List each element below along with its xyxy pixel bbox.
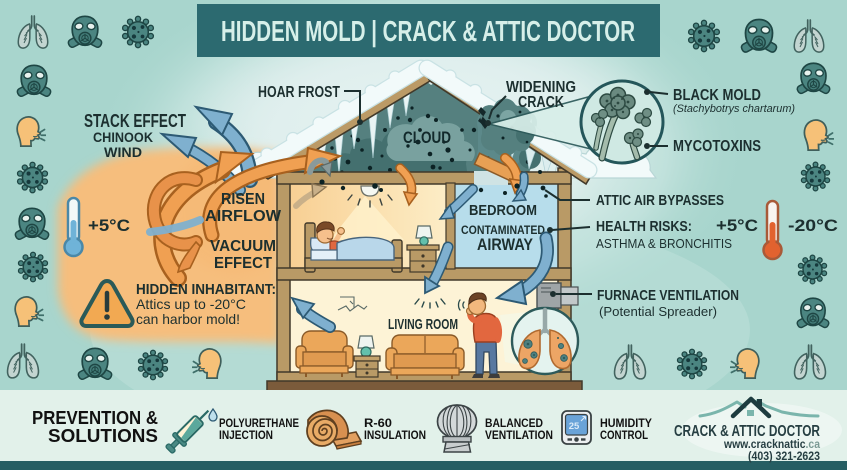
svg-text:(403) 321-2623: (403) 321-2623 <box>748 449 820 463</box>
svg-text:MYCOTOXINS: MYCOTOXINS <box>673 138 761 155</box>
svg-text:CRACK: CRACK <box>518 94 564 111</box>
svg-text:(Stachybotrys chartarum): (Stachybotrys chartarum) <box>673 103 795 115</box>
svg-text:BEDROOM: BEDROOM <box>469 202 537 219</box>
svg-text:WIND: WIND <box>104 144 142 160</box>
svg-text:CONTROL: CONTROL <box>600 430 648 442</box>
svg-text:PREVENTION &: PREVENTION & <box>32 408 158 428</box>
svg-text:+5°C: +5°C <box>716 216 758 235</box>
svg-text:CHINOOK: CHINOOK <box>93 129 153 145</box>
svg-text:can harbor mold!: can harbor mold! <box>136 311 240 327</box>
svg-text:HEALTH RISKS:: HEALTH RISKS: <box>596 218 692 235</box>
svg-text:STACK EFFECT: STACK EFFECT <box>84 111 186 131</box>
svg-text:ASTHMA & BRONCHITIS: ASTHMA & BRONCHITIS <box>596 236 732 251</box>
svg-text:+5°C: +5°C <box>88 216 130 235</box>
svg-text:EFFECT: EFFECT <box>214 255 272 272</box>
svg-text:INJECTION: INJECTION <box>219 430 273 442</box>
svg-text:(Potential Spreader): (Potential Spreader) <box>599 304 717 319</box>
svg-text:BLACK MOLD: BLACK MOLD <box>673 87 761 104</box>
svg-text:FURNACE VENTILATION: FURNACE VENTILATION <box>597 287 739 304</box>
svg-text:RISEN: RISEN <box>221 191 265 208</box>
svg-text:ATTIC AIR BYPASSES: ATTIC AIR BYPASSES <box>596 192 724 209</box>
svg-text:HOAR FROST: HOAR FROST <box>258 84 340 101</box>
svg-text:SOLUTIONS: SOLUTIONS <box>48 426 158 446</box>
svg-text:25: 25 <box>569 421 580 432</box>
svg-text:-20°C: -20°C <box>788 216 838 235</box>
svg-text:HIDDEN MOLD | CRACK & ATTIC DO: HIDDEN MOLD | CRACK & ATTIC DOCTOR <box>221 16 635 48</box>
svg-text:POLYURETHANE: POLYURETHANE <box>219 418 299 430</box>
svg-text:VENTILATION: VENTILATION <box>485 430 553 442</box>
svg-text:CLOUD: CLOUD <box>403 128 451 147</box>
svg-text:HUMIDITY: HUMIDITY <box>600 418 652 430</box>
svg-text:Attics up to -20°C: Attics up to -20°C <box>136 296 246 312</box>
svg-text:AIRFLOW: AIRFLOW <box>205 208 282 225</box>
svg-text:VACUUM: VACUUM <box>210 238 276 255</box>
svg-text:R-60: R-60 <box>364 418 392 430</box>
svg-text:INSULATION: INSULATION <box>364 430 426 442</box>
svg-text:AIRWAY: AIRWAY <box>477 235 534 254</box>
svg-text:BALANCED: BALANCED <box>485 418 543 430</box>
svg-text:LIVING ROOM: LIVING ROOM <box>388 316 458 333</box>
